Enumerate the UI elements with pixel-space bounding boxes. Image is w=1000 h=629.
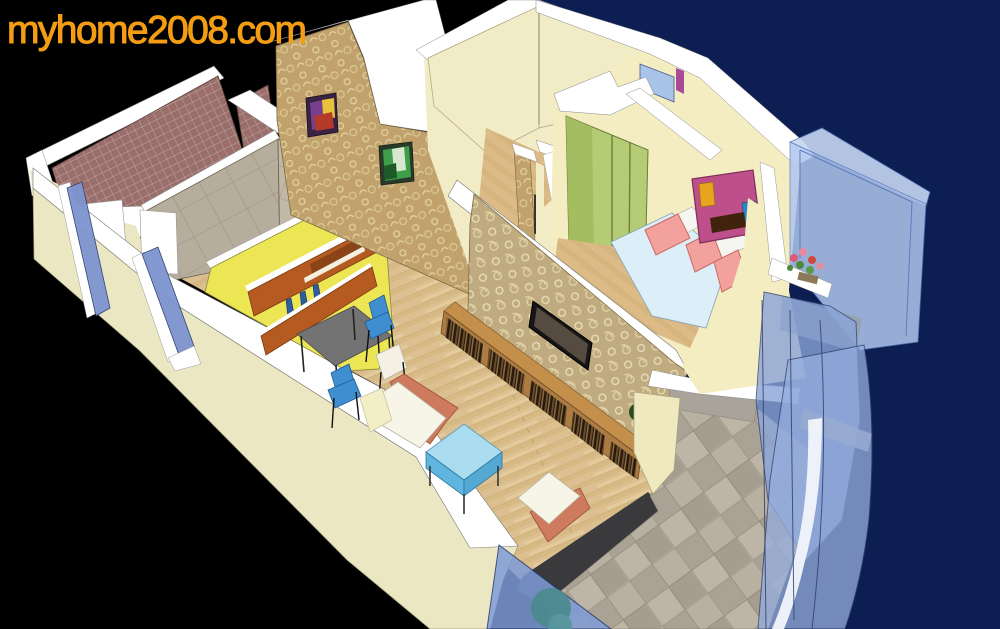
svg-text:myhome2008.com: myhome2008.com	[7, 9, 305, 52]
